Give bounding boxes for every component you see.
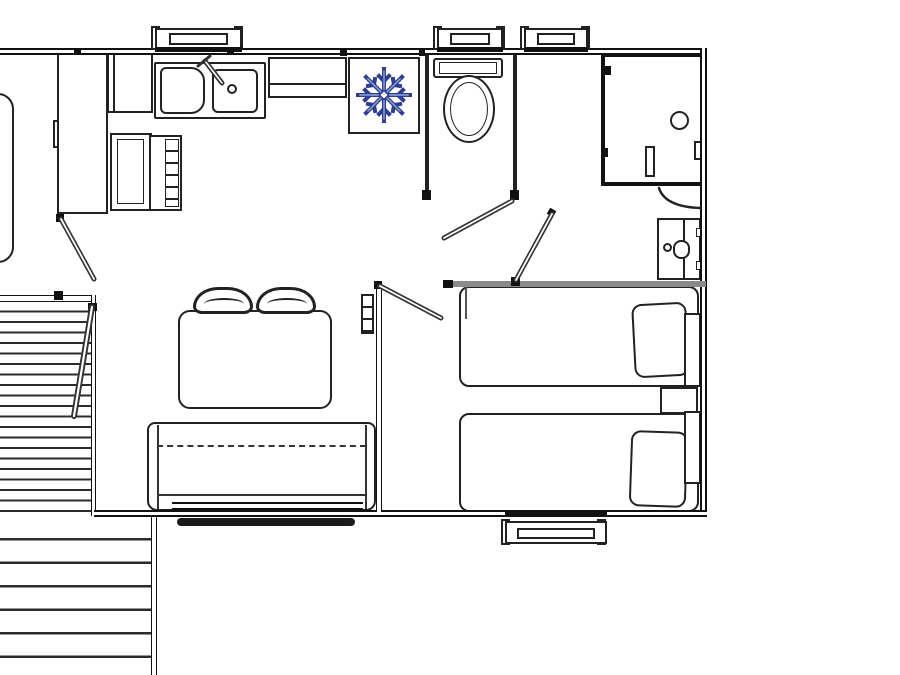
- window4-sill: [505, 512, 607, 517]
- sofa-armrest-right: [365, 425, 367, 509]
- lower-cabinet-door: [117, 139, 144, 204]
- chair-right-seat: [267, 298, 307, 310]
- deck-lower-edge: [151, 517, 157, 675]
- oven-grill: [165, 139, 179, 207]
- sink-drain: [227, 84, 237, 94]
- window4-pane: [517, 528, 595, 539]
- wall-top: [0, 48, 707, 55]
- fridge: [348, 57, 420, 134]
- door-hinge-bedroom: [374, 281, 382, 289]
- bedroom-door-leaf: [380, 286, 441, 318]
- door-tip-hall: [547, 208, 557, 218]
- deck-brace-anchor: [88, 303, 97, 311]
- wall-divider-living-bedroom: [376, 283, 382, 512]
- hall-door-leaf: [516, 214, 552, 280]
- dining-table: [178, 310, 332, 409]
- sink-basin-left: [160, 67, 205, 114]
- wc-wall-left-cap: [422, 190, 431, 200]
- wall-post-3: [340, 50, 347, 56]
- headboard-bottom: [684, 411, 701, 484]
- sofa-armrest-left: [157, 425, 159, 509]
- chair-left: [193, 287, 253, 314]
- entry-door-leaf: [61, 219, 94, 279]
- wardrobe: [57, 53, 108, 214]
- window1-sill: [155, 47, 242, 52]
- deck-upper-rail: [0, 295, 95, 302]
- window-under-sofa: [177, 518, 355, 526]
- wc-wall-right: [513, 52, 517, 200]
- deck-lower-boards: [0, 517, 153, 675]
- wall-post-4: [419, 50, 425, 56]
- headboard-top: [684, 313, 701, 387]
- sofa-base-rail: [172, 502, 363, 510]
- door-hinge-hall: [511, 277, 520, 286]
- nightstand: [660, 387, 698, 414]
- vanity-tap: [663, 243, 672, 252]
- window3-pane: [537, 33, 575, 45]
- counter-shelf: [268, 57, 347, 98]
- shower-drain: [670, 111, 689, 130]
- wardrobe-handle: [53, 120, 59, 148]
- shower-door-handle: [645, 146, 655, 177]
- bedroom-door-frame: [465, 287, 467, 319]
- sofa: [147, 422, 376, 511]
- wall-bedroom-north-cap: [443, 280, 453, 288]
- vanity-basin: [673, 240, 690, 259]
- toilet-cistern-lid: [439, 62, 497, 74]
- floor-plan-canvas: [0, 0, 900, 675]
- wc-wall-right-cap: [510, 190, 519, 200]
- window1-pane: [169, 33, 228, 45]
- wall-heater: [361, 294, 374, 334]
- deck-upper-edge: [91, 295, 96, 516]
- pillow-bottom: [629, 430, 689, 508]
- deck-rail-post: [54, 291, 63, 300]
- deck-upper-boards: [0, 302, 93, 514]
- shower-wall-mark: [603, 148, 608, 157]
- sofa-back-seam: [157, 445, 366, 447]
- chair-left-seat: [204, 298, 244, 310]
- upper-cabinet-divider: [113, 54, 115, 111]
- wall-post-1: [74, 48, 81, 55]
- shower-screen-arc: [659, 188, 701, 208]
- wall-bedroom-north: [443, 281, 706, 287]
- toilet-seat: [450, 82, 488, 136]
- shower-head-mark: [603, 66, 611, 75]
- wc-door-leaf: [444, 201, 512, 238]
- window2-sill: [437, 47, 503, 52]
- door-hinge-entry: [56, 214, 64, 222]
- window2-pane: [450, 33, 490, 45]
- pillow-top: [631, 302, 690, 379]
- window3-sill: [524, 47, 588, 52]
- cutoff-bed: [0, 93, 14, 263]
- wc-wall-left: [425, 52, 429, 200]
- chair-right: [256, 287, 316, 314]
- wall-bottom: [94, 510, 707, 517]
- sofa-seat-seam: [157, 494, 366, 496]
- counter-shelf-line: [270, 83, 345, 85]
